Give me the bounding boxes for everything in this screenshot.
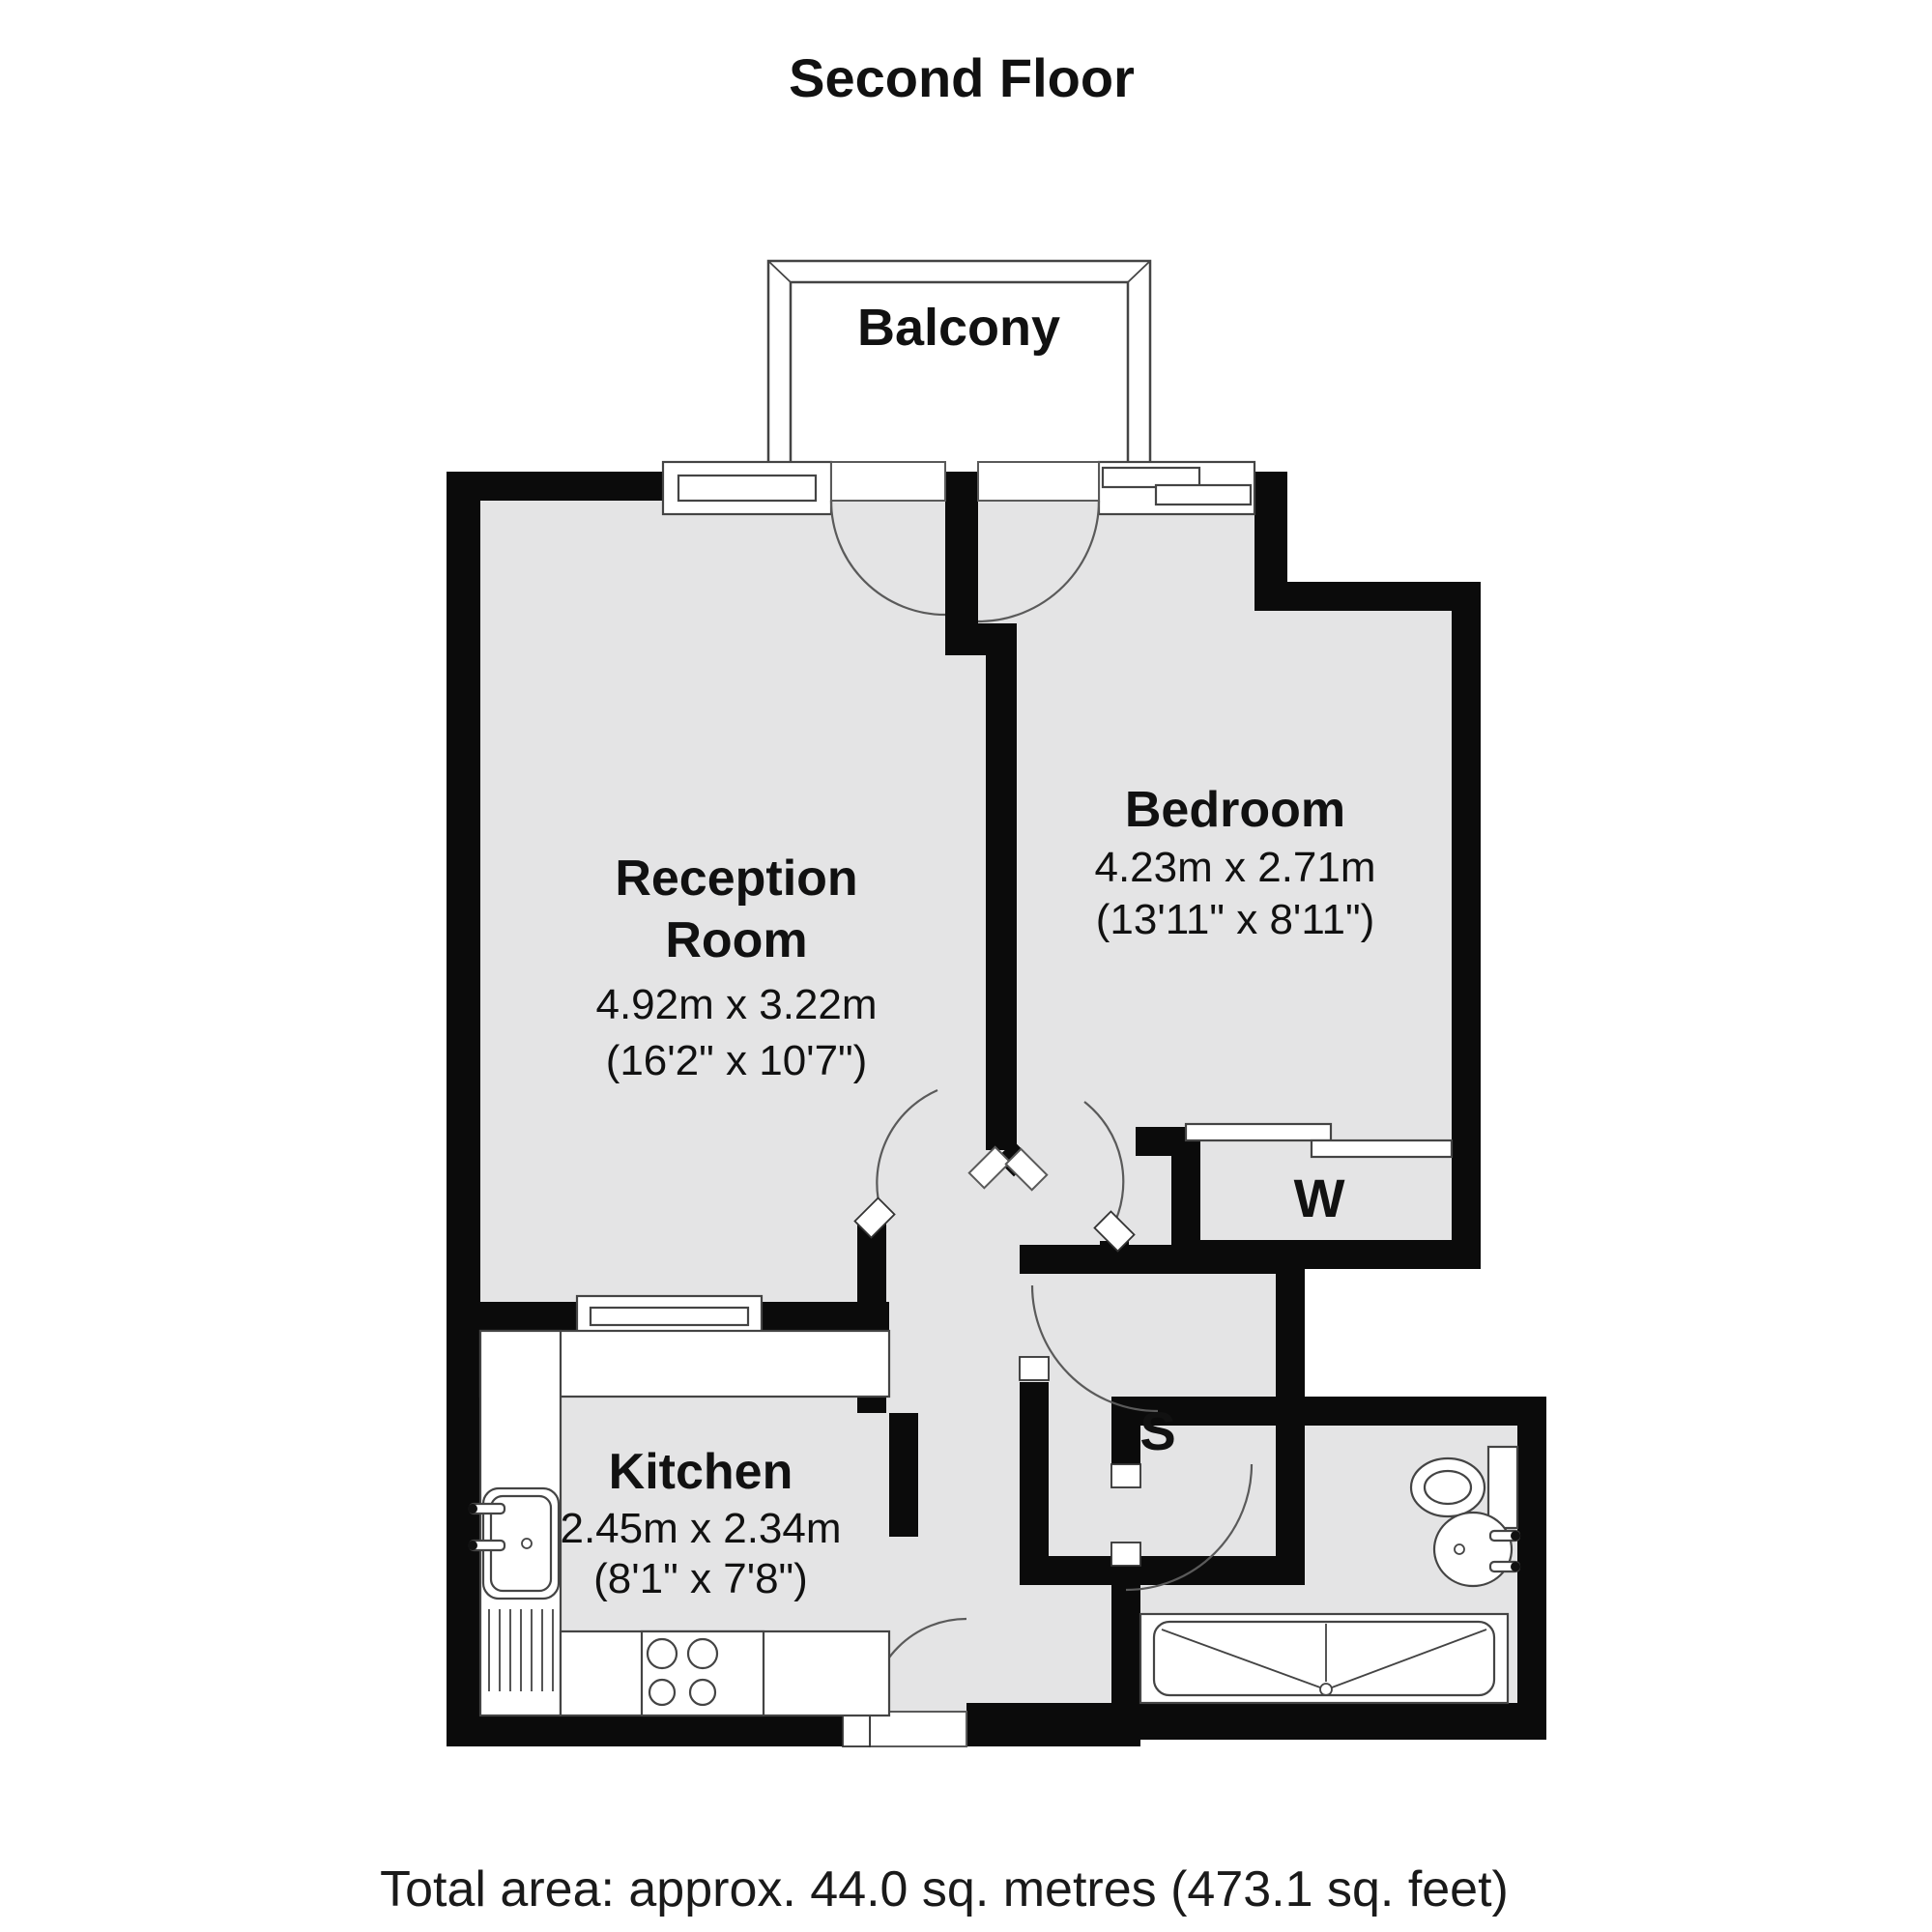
wall-bathroom-left-a [1111,1426,1140,1464]
total-area-text: Total area: approx. 44.0 sq. metres (473… [380,1861,1509,1918]
reception-dims-metric: 4.92m x 3.22m [595,981,877,1028]
entrance-door-leaf [870,1712,966,1746]
wall-bathroom-right [1517,1397,1546,1740]
bedroom-dims-imperial: (13'11" x 8'11") [1096,896,1375,943]
wall-divider-jog [945,623,1017,655]
wall-kitchen-right [889,1413,918,1537]
balcony-wall-miter [768,261,1150,282]
wall-right-upper [1452,582,1481,1269]
wardrobe-label: W [1294,1168,1345,1228]
floorplan-page: Second Floor Balcony [0,0,1932,1932]
bedroom-balcony-door-leaf [978,462,1099,501]
hallway-floor [1020,1585,1111,1703]
reception-label: Reception [615,851,857,907]
wall-left [447,472,480,1746]
wall-bathroom-top [1111,1397,1546,1426]
wall-bottom-kitchen [447,1716,870,1746]
cap-bathroom-door-top [1111,1464,1140,1487]
wall-bathroom-left-b [1111,1566,1140,1703]
wall-bathroom-bottom [1111,1703,1546,1740]
reception-window [663,462,831,514]
kitchen-dims-metric: 2.45m x 2.34m [560,1505,841,1552]
wall-divider-upper [945,472,978,628]
wall-divider-lower [986,655,1017,1150]
wall-storage-left [1020,1382,1049,1585]
reception-dims-imperial: (16'2" x 10'7") [606,1037,868,1084]
page-title: Second Floor [789,47,1135,108]
bedroom-label: Bedroom [1125,782,1345,838]
reception-label-2: Room [665,912,807,968]
hob-icon [642,1631,764,1716]
cap-storage-door [1020,1357,1049,1380]
bathtub-icon [1140,1614,1508,1703]
bedroom-window [1099,462,1254,514]
wall-storage-top [1020,1245,1276,1274]
wall-reception-bottom-a [476,1302,577,1331]
floorplan-svg: Second Floor Balcony [0,0,1932,1932]
cap-entrance [843,1716,870,1746]
cap-bathroom-door-bottom [1111,1543,1140,1566]
kitchen-dims-imperial: (8'1" x 7'8") [593,1555,808,1602]
bedroom-dims-metric: 4.23m x 2.71m [1094,844,1375,891]
wall-top-step-horizontal [1258,582,1481,611]
wall-storage-bottom [1020,1556,1305,1585]
reception-balcony-door-leaf [831,462,945,501]
storage-label: S [1139,1400,1175,1461]
balcony-label: Balcony [857,299,1060,357]
kitchen-label: Kitchen [609,1444,793,1500]
hallway-floor [988,1245,1020,1585]
